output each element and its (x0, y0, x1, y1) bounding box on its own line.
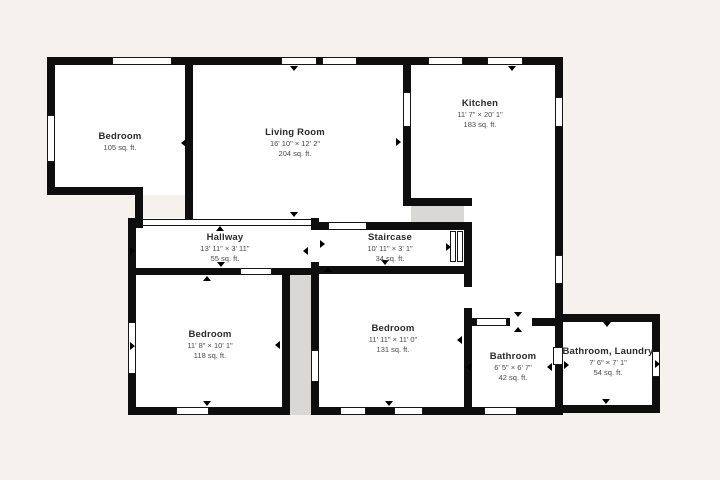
room-name: Bedroom (45, 132, 195, 142)
room-dimensions: 11' 8" × 10' 1" (135, 342, 285, 350)
door-marker (290, 66, 298, 71)
room-label-bathroom-laundry: Bathroom, Laundry 7' 6" × 7' 1" 54 sq. f… (533, 347, 683, 377)
window (112, 57, 172, 65)
door-opening (510, 318, 532, 326)
room-name: Hallway (150, 233, 300, 243)
open-wall (136, 219, 311, 226)
room-name: Bathroom, Laundry (533, 347, 683, 357)
wall (403, 57, 411, 206)
room-dimensions: 11' 7" × 20' 1" (405, 111, 555, 119)
room-dimensions: 10' 11" × 3' 1" (315, 245, 465, 253)
door-marker (324, 267, 332, 272)
door-marker (514, 312, 522, 317)
room-label-kitchen: Kitchen 11' 7" × 20' 1" 183 sq. ft. (405, 99, 555, 129)
window (240, 268, 272, 275)
room-name: Bedroom (135, 330, 285, 340)
door-marker (303, 247, 308, 255)
wall (555, 318, 563, 347)
room-label-bedroom-bottom-left: Bedroom 11' 8" × 10' 1" 118 sq. ft. (135, 330, 285, 360)
window (428, 57, 463, 65)
window (484, 407, 517, 415)
door-marker (514, 327, 522, 332)
wall (464, 222, 472, 274)
window (394, 407, 423, 415)
room-label-bedroom-top-left: Bedroom 105 sq. ft. (45, 132, 195, 152)
wall (311, 218, 319, 230)
room-label-bedroom-bottom-middle: Bedroom 11' 11" × 11' 0" 131 sq. ft. (318, 324, 468, 354)
room-area-text: 55 sq. ft. (150, 255, 300, 263)
room-dimensions: 16' 10" × 12' 2" (220, 140, 370, 148)
wall (135, 187, 143, 228)
door-marker (508, 66, 516, 71)
room-dimensions: 7' 6" × 7' 1" (533, 359, 683, 367)
room-dimensions: 11' 11" × 11' 0" (318, 336, 468, 344)
door-opening (464, 287, 472, 308)
wall (555, 314, 660, 322)
wall (47, 187, 143, 195)
room-area-text: 183 sq. ft. (405, 121, 555, 129)
room-label-staircase: Staircase 10' 11" × 3' 1" 34 sq. ft. (315, 233, 465, 263)
room-name: Staircase (315, 233, 465, 243)
window (176, 407, 209, 415)
window (555, 97, 563, 127)
void-space (290, 275, 311, 415)
door-marker (603, 322, 611, 327)
wall (555, 405, 660, 413)
void-space (411, 205, 464, 223)
window (281, 57, 317, 65)
wall (128, 407, 290, 415)
window (555, 255, 563, 284)
room-area-text: 34 sq. ft. (315, 255, 465, 263)
window (328, 222, 367, 230)
wall (403, 198, 472, 206)
door-marker (290, 212, 298, 217)
room-area-text: 204 sq. ft. (220, 150, 370, 158)
room-area-text: 54 sq. ft. (533, 369, 683, 377)
room-name: Kitchen (405, 99, 555, 109)
room-label-hallway: Hallway 13' 11" × 3' 11" 55 sq. ft. (150, 233, 300, 263)
room-area-bedroom-top-left (47, 57, 193, 195)
room-area-text: 118 sq. ft. (135, 352, 285, 360)
room-area-text: 105 sq. ft. (45, 144, 195, 152)
room-name: Bedroom (318, 324, 468, 334)
door-marker (203, 401, 211, 406)
door-marker (203, 276, 211, 281)
wall (311, 266, 472, 274)
window (322, 57, 357, 65)
room-label-living-room: Living Room 16' 10" × 12' 2" 204 sq. ft. (220, 128, 370, 158)
wall (311, 407, 472, 415)
window (476, 318, 507, 326)
door-marker (385, 401, 393, 406)
floor-plan: Bedroom 105 sq. ft. Living Room 16' 10" … (0, 0, 720, 480)
door-marker (130, 247, 135, 255)
door-marker (602, 399, 610, 404)
wall (128, 268, 319, 275)
door-marker (396, 138, 401, 146)
room-name: Living Room (220, 128, 370, 138)
window (487, 57, 523, 65)
wall (464, 274, 472, 287)
window (311, 350, 319, 382)
door-marker (216, 226, 224, 231)
window (340, 407, 366, 415)
room-dimensions: 13' 11" × 3' 11" (150, 245, 300, 253)
